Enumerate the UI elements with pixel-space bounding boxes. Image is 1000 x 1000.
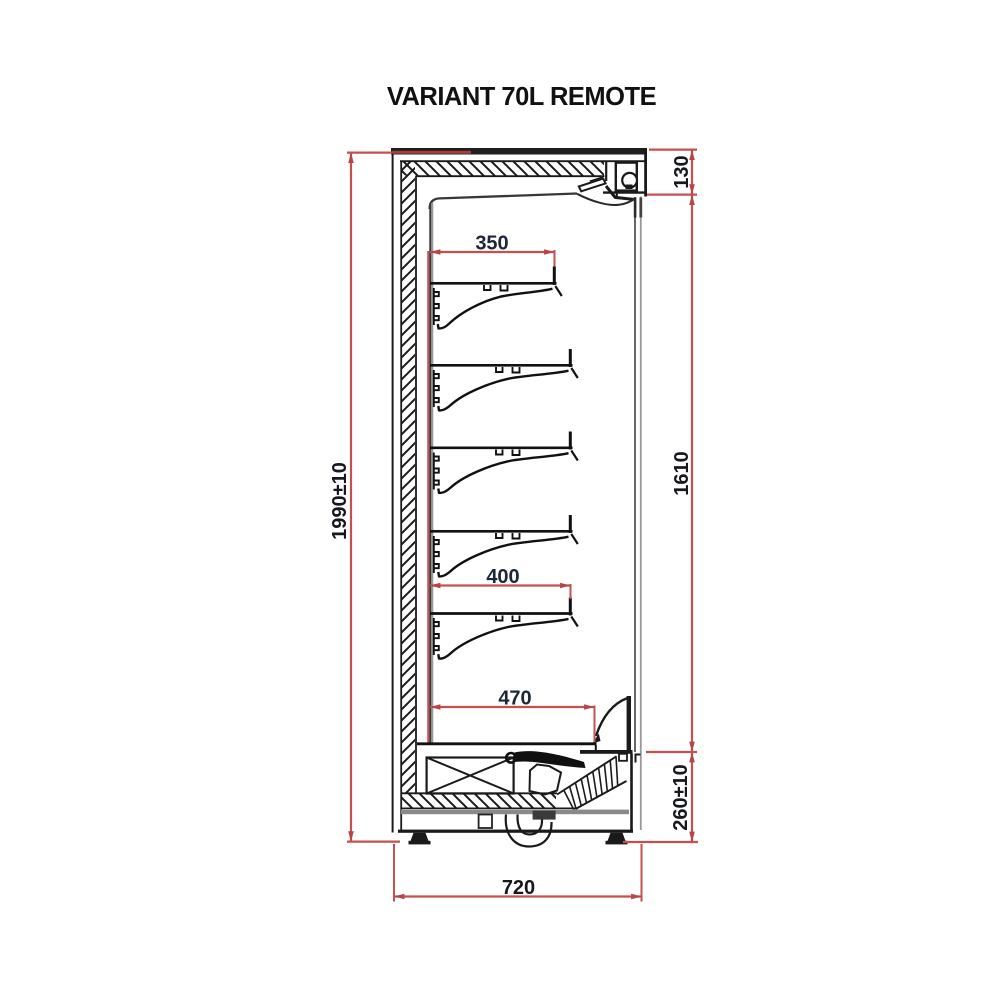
svg-text:400: 400 — [486, 566, 519, 588]
svg-text:1610: 1610 — [671, 451, 693, 496]
svg-text:130: 130 — [671, 155, 693, 188]
svg-text:1990±10: 1990±10 — [329, 462, 351, 540]
svg-text:350: 350 — [475, 233, 508, 255]
svg-text:720: 720 — [502, 877, 535, 899]
svg-text:470: 470 — [498, 688, 531, 710]
svg-text:260±10: 260±10 — [670, 764, 692, 831]
svg-text:VARIANT 70L REMOTE: VARIANT 70L REMOTE — [387, 83, 657, 111]
